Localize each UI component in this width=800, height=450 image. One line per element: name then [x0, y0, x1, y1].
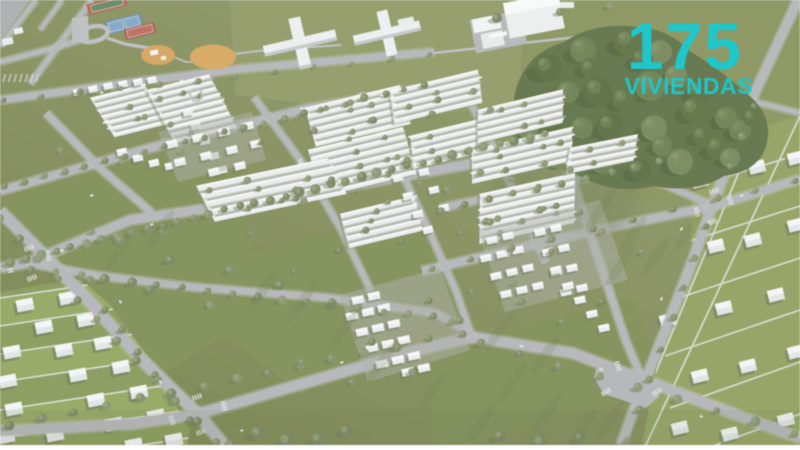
svg-text:VIVIENDAS: VIVIENDAS [625, 73, 753, 99]
svg-text:175: 175 [627, 9, 743, 83]
